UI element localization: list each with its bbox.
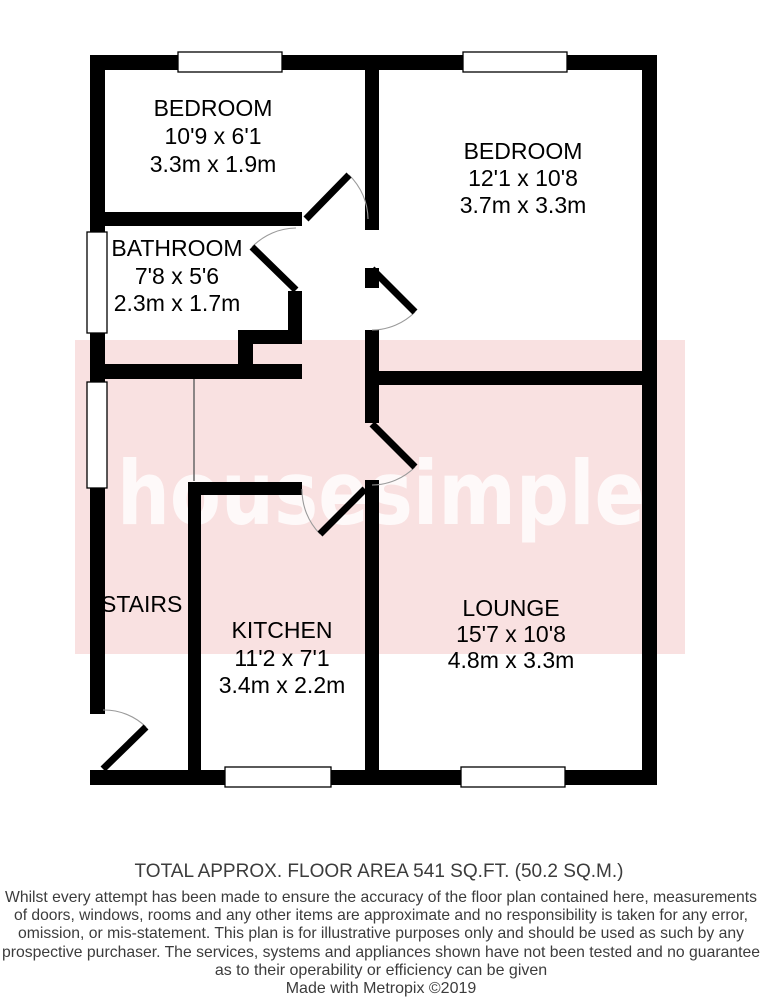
lounge-dims-imperial: 15'7 x 10'8 [456,621,566,647]
disclaimer-line-5: as to their operability or efficiency ca… [215,962,547,979]
lounge-dims-metric: 4.8m x 3.3m [448,647,575,673]
metropix-credit: Made with Metropix ©2019 [286,980,477,997]
wall-lounge-top [365,371,642,385]
wall-bottom [90,770,657,785]
bedroom2-label: BEDROOM [464,138,583,164]
disclaimer-line-3: omission, or mis-statement. This plan is… [18,925,744,942]
wall-bedroom1-bottom [104,212,302,226]
wall-cupboard-vertical [238,330,253,364]
total-area-text: TOTAL APPROX. FLOOR AREA 541 SQ.FT. (50.… [135,861,624,882]
disclaimer-line-2: of doors, windows, rooms and any other i… [14,907,748,924]
floor-plan-svg: housesimple [0,0,762,1000]
wall-kitchen-lounge-divider [365,480,379,770]
wall-right [642,55,657,785]
window-lounge-bottom [461,767,565,787]
bedroom2-dims-imperial: 12'1 x 10'8 [468,165,578,191]
window-bedroom2-top [463,52,567,72]
wall-top [90,55,657,70]
kitchen-dims-metric: 3.4m x 2.2m [219,672,346,698]
bedroom1-dims-metric: 3.3m x 1.9m [150,151,277,177]
kitchen-dims-imperial: 11'2 x 7'1 [234,645,329,671]
wall-kitchen-top [188,482,302,495]
wall-kitchen-left [188,482,201,785]
window-kitchen-bottom [225,767,331,787]
window-bedroom1-top [178,52,282,72]
bedroom1-label: BEDROOM [154,95,273,121]
disclaimer-line-1: Whilst every attempt has been made to en… [5,889,757,906]
bathroom-dims-imperial: 7'8 x 5'6 [135,263,219,289]
lounge-label: LOUNGE [462,595,559,621]
window-bathroom-left [87,232,107,333]
bathroom-label: BATHROOM [111,235,242,261]
floor-plan-page: housesimple [0,0,762,1000]
bedroom2-dims-metric: 3.7m x 3.3m [460,192,587,218]
bedroom1-dims-imperial: 10'9 x 6'1 [164,123,261,149]
wall-hall-top [104,364,302,379]
kitchen-label: KITCHEN [232,617,333,643]
bathroom-dims-metric: 2.3m x 1.7m [114,290,241,316]
disclaimer-line-4: prospective purchaser. The services, sys… [2,944,760,961]
stairs-label: STAIRS [101,591,182,617]
window-stairs-left [87,382,107,488]
